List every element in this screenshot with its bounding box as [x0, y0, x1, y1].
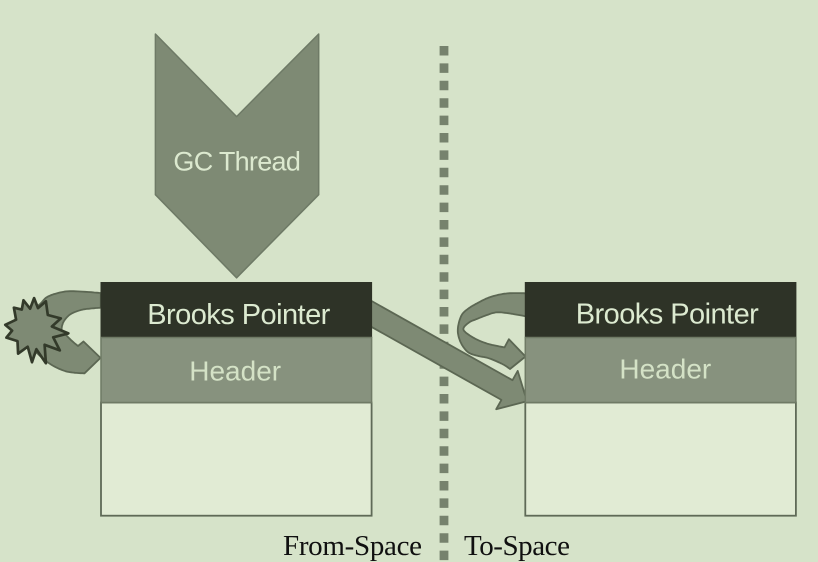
svg-text:Header: Header [619, 354, 711, 385]
svg-text:To-Space: To-Space [464, 530, 570, 562]
svg-text:From-Space: From-Space [283, 530, 422, 562]
svg-text:Header: Header [189, 355, 281, 386]
svg-text:GC Thread: GC Thread [173, 146, 300, 176]
svg-text:Brooks Pointer: Brooks Pointer [576, 298, 759, 330]
svg-text:Brooks Pointer: Brooks Pointer [147, 299, 330, 331]
